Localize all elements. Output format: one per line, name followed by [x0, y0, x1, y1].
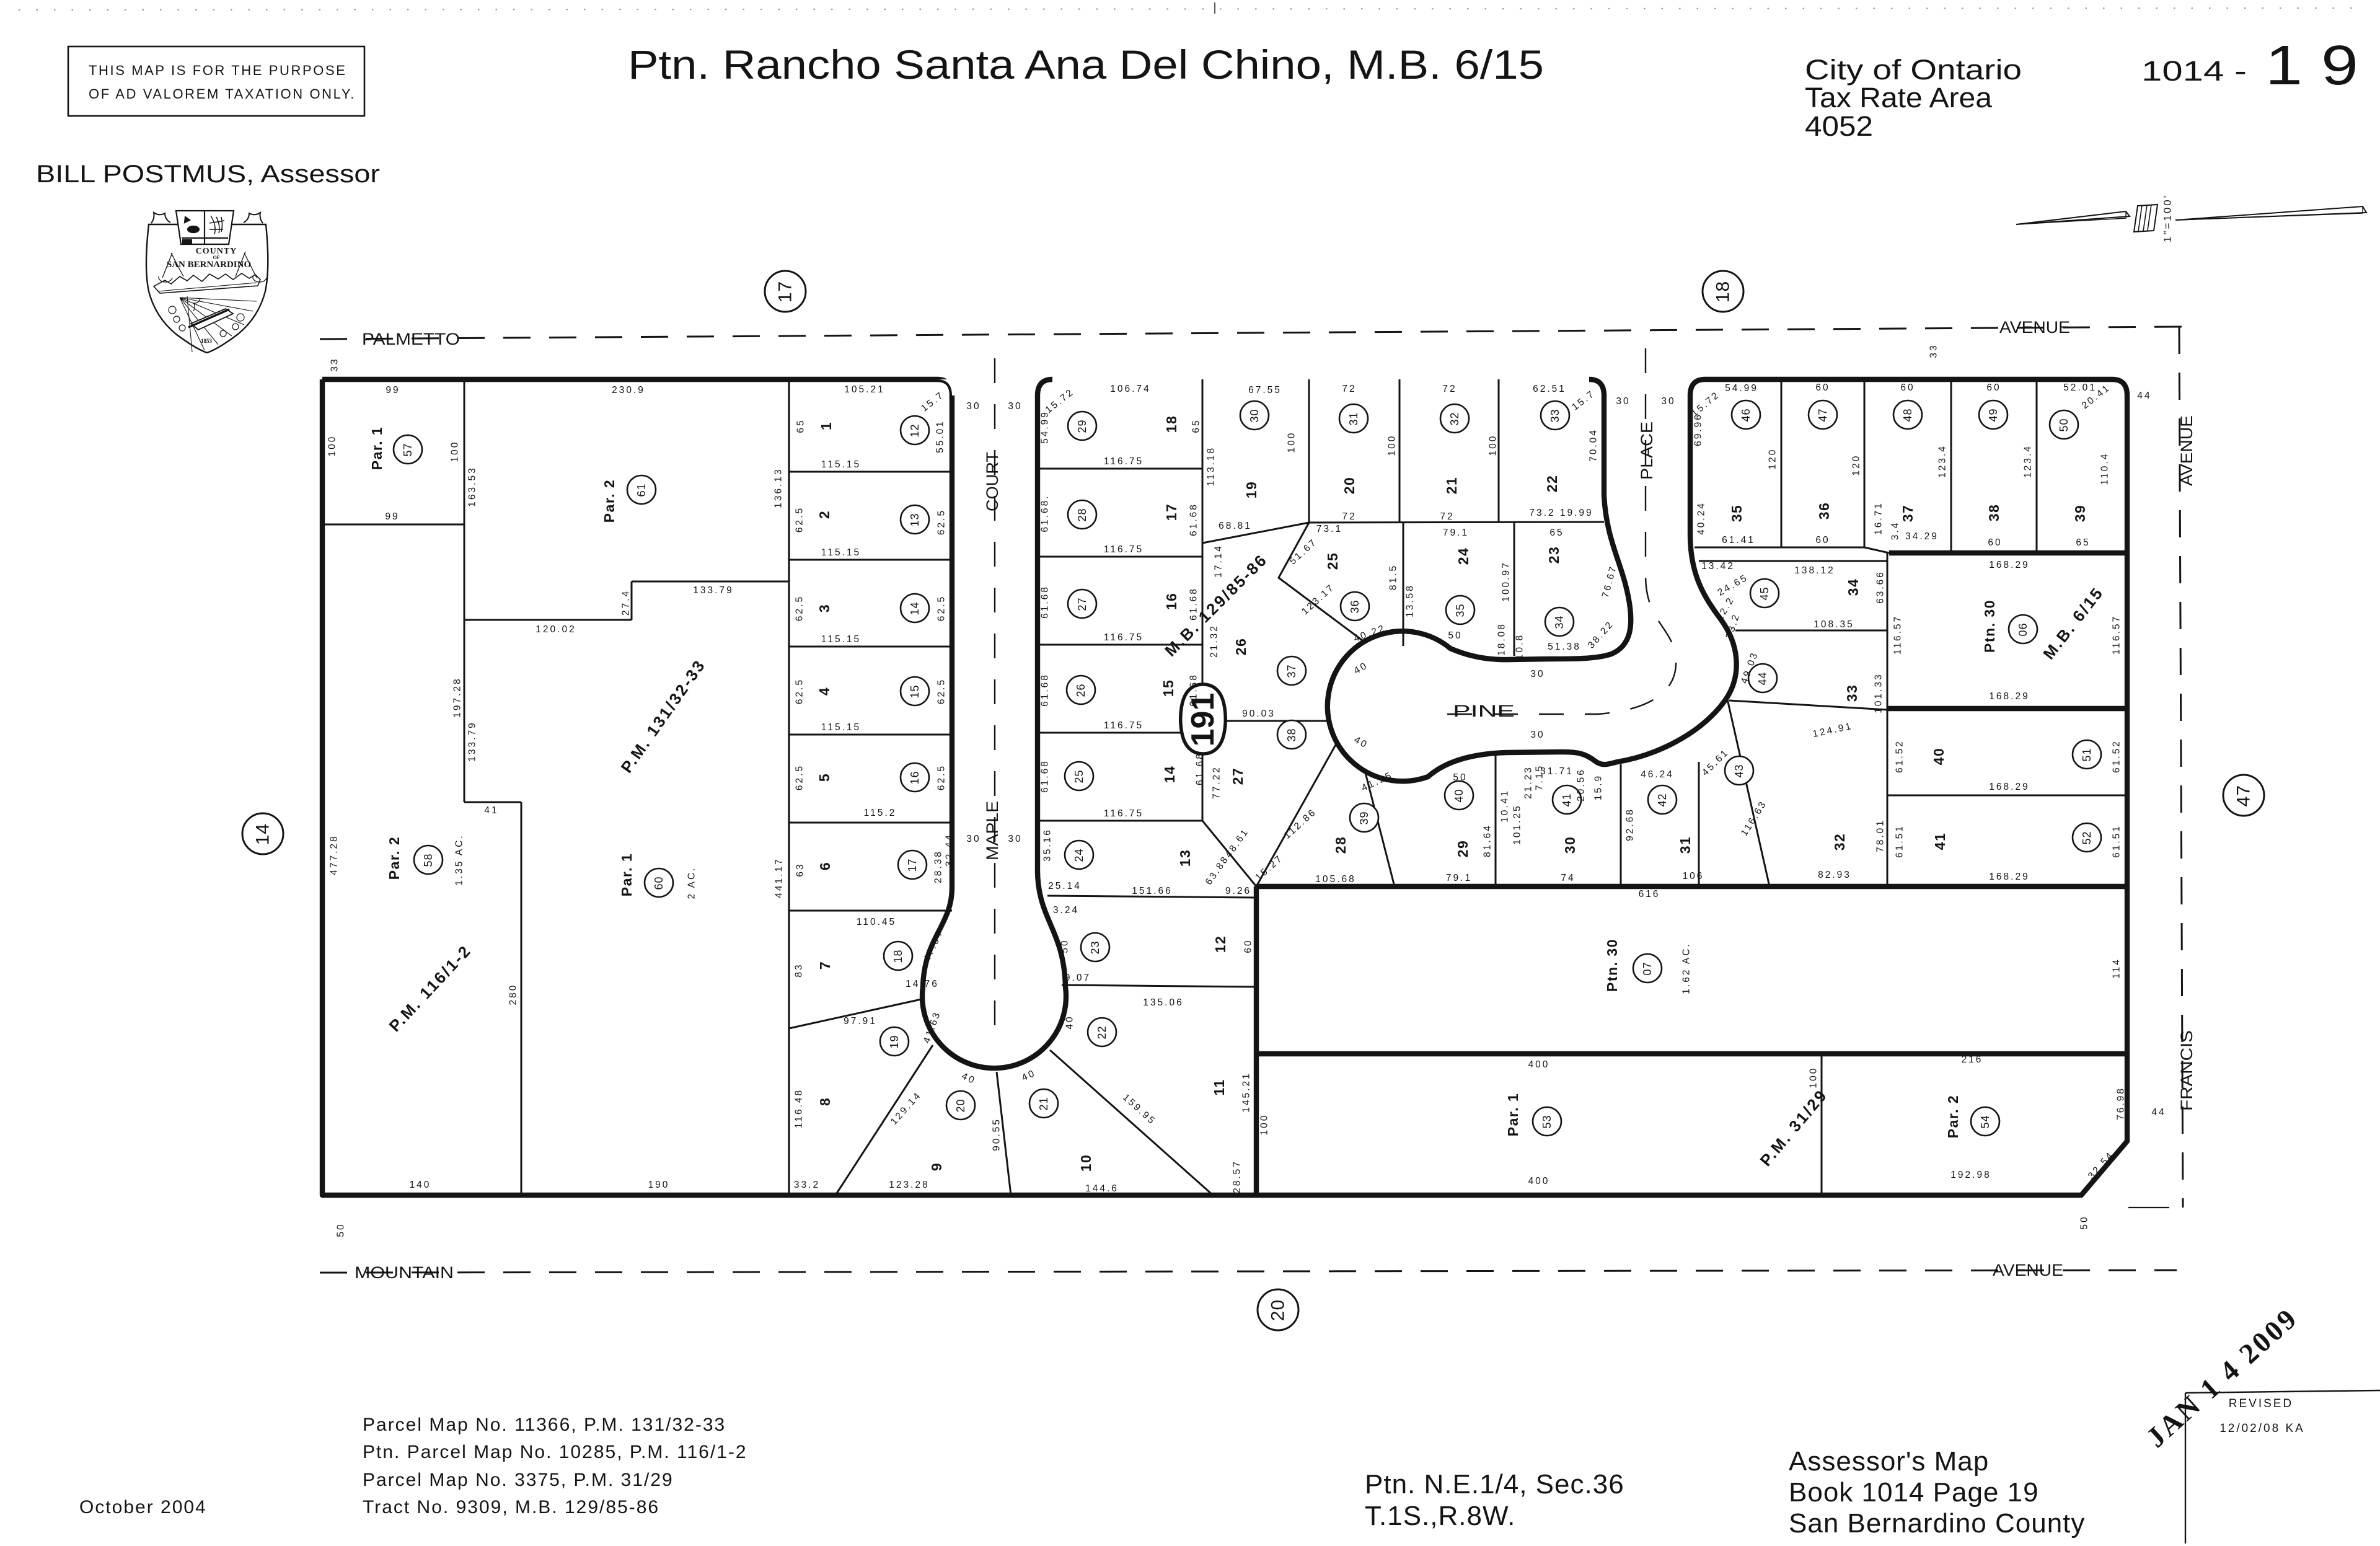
svg-text:78.01: 78.01: [1875, 819, 1886, 852]
svg-text:101.33: 101.33: [1874, 673, 1884, 713]
svg-text:60: 60: [1815, 535, 1830, 546]
svg-text:14: 14: [253, 823, 273, 845]
svg-text:23: 23: [1089, 940, 1101, 954]
svg-text:40: 40: [1453, 788, 1465, 802]
svg-text:21: 21: [1443, 477, 1460, 495]
svg-text:477.28: 477.28: [329, 834, 340, 875]
svg-text:Par. 2: Par. 2: [1945, 1095, 1961, 1138]
svg-text:22: 22: [1096, 1025, 1108, 1039]
svg-text:74: 74: [1561, 873, 1575, 883]
svg-text:City of Ontario: City of Ontario: [1805, 54, 2022, 86]
svg-text:11: 11: [1211, 1079, 1227, 1095]
svg-text:62.5: 62.5: [937, 678, 947, 704]
svg-text:61.68: 61.68: [1040, 585, 1051, 619]
svg-text:1.35 AC.: 1.35 AC.: [454, 834, 465, 885]
svg-text:32.44: 32.44: [945, 833, 955, 867]
svg-text:616: 616: [1639, 889, 1660, 899]
svg-text:12: 12: [909, 423, 921, 437]
svg-text:42: 42: [1656, 793, 1668, 806]
svg-text:3.4: 3.4: [1890, 521, 1901, 541]
svg-text:6: 6: [817, 862, 833, 870]
svg-text:116.75: 116.75: [1104, 720, 1144, 731]
svg-text:21: 21: [1038, 1097, 1050, 1110]
svg-text:THIS MAP IS FOR THE PURPOSE: THIS MAP IS FOR THE PURPOSE: [89, 63, 347, 78]
svg-text:44: 44: [1756, 671, 1769, 685]
svg-text:33: 33: [1844, 684, 1860, 702]
svg-text:72: 72: [1440, 511, 1454, 522]
svg-text:58: 58: [422, 853, 434, 867]
svg-text:54.99: 54.99: [1040, 410, 1051, 444]
svg-text:16.71: 16.71: [1874, 501, 1884, 535]
svg-text:20: 20: [1341, 477, 1357, 495]
svg-text:61.68: 61.68: [1189, 587, 1199, 621]
svg-text:57: 57: [402, 443, 414, 456]
svg-text:115.15: 115.15: [821, 634, 861, 645]
svg-text:25: 25: [1324, 552, 1341, 570]
svg-text:Assessor's Map: Assessor's Map: [1789, 1446, 1989, 1477]
svg-text:13.58: 13.58: [1405, 584, 1416, 617]
svg-text:38: 38: [1986, 504, 2002, 522]
svg-text:27: 27: [1230, 767, 1246, 785]
svg-text:10: 10: [1078, 1154, 1094, 1172]
svg-text:61.52: 61.52: [1895, 740, 1905, 773]
svg-text:Ptn. Rancho Santa Ana Del Chin: Ptn. Rancho Santa Ana Del Chino, M.B. 6/…: [628, 42, 1544, 87]
svg-text:280: 280: [508, 984, 519, 1005]
svg-text:140: 140: [410, 1180, 431, 1190]
svg-text:105.21: 105.21: [844, 384, 884, 395]
svg-text:46: 46: [1740, 408, 1752, 422]
svg-text:28.57: 28.57: [1232, 1160, 1243, 1193]
svg-text:60: 60: [1900, 382, 1915, 393]
svg-text:32: 32: [1831, 833, 1848, 851]
svg-text:AVENUE: AVENUE: [1999, 318, 2070, 337]
svg-text:116.75: 116.75: [1104, 808, 1144, 819]
svg-text:30: 30: [1008, 401, 1022, 412]
svg-text:68.81: 68.81: [1219, 521, 1252, 531]
svg-text:192.98: 192.98: [1950, 1170, 1991, 1180]
svg-text:47: 47: [1817, 408, 1829, 422]
svg-text:100: 100: [327, 435, 338, 457]
svg-text:45: 45: [1758, 586, 1771, 600]
svg-text:PALMETTO: PALMETTO: [362, 330, 460, 348]
svg-text:100: 100: [1488, 435, 1499, 456]
svg-text:441.17: 441.17: [774, 857, 785, 898]
svg-text:62.5: 62.5: [937, 764, 947, 790]
svg-text:06: 06: [2017, 622, 2029, 636]
svg-text:13: 13: [909, 513, 921, 526]
svg-text:24: 24: [1073, 848, 1085, 862]
svg-text:30: 30: [1530, 730, 1545, 740]
svg-text:15: 15: [1160, 679, 1176, 697]
svg-text:92.68: 92.68: [1625, 808, 1636, 841]
svg-text:23: 23: [1546, 546, 1562, 564]
svg-text:72: 72: [1342, 384, 1356, 394]
svg-text:1"=100': 1"=100': [2162, 194, 2174, 242]
svg-text:07: 07: [1641, 961, 1654, 975]
svg-text:106: 106: [1683, 871, 1704, 881]
svg-text:190: 190: [648, 1180, 670, 1190]
svg-text:83: 83: [794, 963, 804, 977]
svg-text:21.23: 21.23: [1523, 766, 1534, 799]
svg-text:60: 60: [1815, 382, 1830, 393]
svg-text:10.41: 10.41: [1500, 789, 1510, 823]
svg-text:1014 -: 1014 -: [2141, 55, 2247, 87]
svg-text:12/02/08 KA: 12/02/08 KA: [2219, 1422, 2305, 1435]
svg-text:36: 36: [1349, 599, 1361, 613]
svg-text:62.5: 62.5: [795, 678, 805, 704]
svg-text:18.08: 18.08: [1497, 622, 1507, 656]
svg-text:168.29: 168.29: [1989, 691, 2029, 702]
svg-text:43: 43: [1733, 764, 1745, 777]
svg-text:61.51: 61.51: [2112, 824, 2122, 858]
svg-text:116.75: 116.75: [1104, 544, 1144, 555]
svg-text:29: 29: [1455, 840, 1471, 858]
svg-text:14.76: 14.76: [906, 979, 939, 989]
svg-text:73.1: 73.1: [1316, 524, 1342, 534]
svg-text:44: 44: [2137, 391, 2151, 401]
svg-text:25: 25: [1073, 769, 1085, 783]
svg-text:65: 65: [1549, 528, 1564, 538]
svg-text:52: 52: [2081, 831, 2093, 844]
svg-text:163.53: 163.53: [467, 466, 478, 506]
svg-text:79.1: 79.1: [1443, 528, 1469, 538]
svg-text:Parcel Map No. 11366, P.M. 131: Parcel Map No. 11366, P.M. 131/32-33: [363, 1415, 726, 1435]
svg-text:17: 17: [775, 281, 796, 303]
svg-text:99: 99: [386, 385, 400, 395]
svg-text:38: 38: [1285, 728, 1298, 741]
svg-text:30: 30: [1008, 834, 1022, 844]
svg-text:Par. 1: Par. 1: [1505, 1093, 1521, 1136]
svg-text:7: 7: [817, 961, 833, 970]
svg-text:100: 100: [1387, 435, 1398, 456]
svg-text:5: 5: [816, 773, 832, 782]
svg-text:113.18: 113.18: [1206, 446, 1217, 486]
svg-text:81.64: 81.64: [1483, 824, 1493, 857]
svg-text:70.04: 70.04: [1589, 428, 1599, 462]
svg-text:100.97: 100.97: [1501, 561, 1512, 601]
svg-text:50: 50: [1453, 772, 1467, 783]
svg-text:Par. 1: Par. 1: [369, 426, 385, 470]
svg-text:54: 54: [1979, 1115, 1991, 1128]
svg-text:4: 4: [816, 687, 832, 696]
svg-text:20: 20: [1268, 1299, 1289, 1321]
svg-text:39: 39: [1358, 811, 1370, 824]
svg-text:46.24: 46.24: [1641, 769, 1674, 780]
svg-text:1853: 1853: [201, 338, 213, 344]
svg-text:63.66: 63.66: [1875, 570, 1886, 604]
svg-text:115.15: 115.15: [821, 722, 861, 733]
svg-text:123.4: 123.4: [1937, 444, 1948, 478]
svg-text:50: 50: [2079, 1215, 2090, 1229]
svg-text:116.57: 116.57: [2112, 615, 2122, 655]
svg-text:62.5: 62.5: [795, 764, 805, 790]
svg-text:19: 19: [888, 1035, 901, 1048]
svg-text:144.6: 144.6: [1085, 1183, 1119, 1194]
svg-text:27: 27: [1076, 597, 1088, 611]
svg-text:53: 53: [1541, 1115, 1553, 1128]
svg-text:79.1: 79.1: [1446, 873, 1472, 883]
svg-text:Ptn. 30: Ptn. 30: [1604, 939, 1620, 992]
svg-text:99: 99: [385, 511, 399, 522]
svg-text:32: 32: [1448, 412, 1461, 425]
svg-text:133.79: 133.79: [693, 585, 733, 596]
svg-text:33: 33: [1929, 343, 1939, 358]
svg-text:SAN BERNARDINO: SAN BERNARDINO: [167, 260, 251, 270]
svg-text:40: 40: [1931, 748, 1947, 766]
svg-text:62.5: 62.5: [795, 506, 805, 532]
svg-text:61.68: 61.68: [1040, 673, 1051, 707]
svg-text:138.12: 138.12: [1794, 565, 1835, 576]
svg-text:28: 28: [1333, 836, 1349, 854]
svg-text:30: 30: [1562, 836, 1578, 854]
svg-text:81.5: 81.5: [1388, 564, 1399, 590]
svg-text:28.38: 28.38: [933, 850, 944, 883]
svg-text:51: 51: [2081, 748, 2093, 761]
svg-text:27.4: 27.4: [621, 590, 632, 616]
svg-text:29: 29: [1076, 419, 1088, 433]
svg-text:Par. 2: Par. 2: [386, 836, 402, 880]
svg-text:30: 30: [1661, 396, 1675, 407]
svg-text:67.55: 67.55: [1248, 385, 1282, 395]
svg-text:230.9: 230.9: [612, 385, 645, 395]
svg-text:50: 50: [1060, 939, 1070, 953]
svg-text:Ptn. 30: Ptn. 30: [1981, 599, 1998, 653]
svg-text:2: 2: [816, 510, 832, 519]
svg-text:20: 20: [954, 1098, 967, 1112]
svg-text:AVENUE: AVENUE: [2177, 415, 2196, 486]
svg-text:133.79: 133.79: [467, 721, 478, 761]
svg-text:30: 30: [966, 834, 981, 844]
svg-text:90.55: 90.55: [992, 1118, 1002, 1151]
svg-text:60: 60: [653, 876, 665, 890]
svg-text:116.57: 116.57: [1893, 615, 1903, 655]
svg-text:115.15: 115.15: [821, 547, 861, 558]
svg-text:30: 30: [1530, 669, 1545, 679]
svg-text:9.26: 9.26: [1225, 886, 1251, 896]
svg-text:28: 28: [1076, 508, 1088, 521]
svg-text:115.2: 115.2: [864, 808, 897, 818]
svg-text:16: 16: [909, 771, 921, 784]
svg-text:61.68: 61.68: [1040, 759, 1051, 793]
svg-text:COURT: COURT: [983, 452, 1002, 511]
svg-text:22: 22: [1544, 475, 1560, 493]
svg-text:72: 72: [1442, 384, 1457, 394]
svg-text:7.15: 7.15: [1535, 764, 1545, 790]
svg-text:116.75: 116.75: [1104, 632, 1144, 643]
svg-text:REVISED: REVISED: [2229, 1397, 2293, 1410]
svg-text:63: 63: [795, 862, 806, 877]
svg-text:61: 61: [635, 483, 648, 497]
svg-text:21.32: 21.32: [1209, 624, 1220, 658]
svg-text:MOUNTAIN: MOUNTAIN: [355, 1263, 454, 1282]
svg-text:34: 34: [1553, 615, 1566, 629]
svg-text:61.68: 61.68: [1189, 503, 1199, 536]
svg-text:1: 1: [818, 422, 834, 430]
svg-text:41: 41: [1932, 833, 1948, 850]
svg-text:61.68: 61.68: [1189, 673, 1199, 707]
svg-text:61.51: 61.51: [1895, 824, 1905, 858]
svg-text:Parcel Map No. 3375, P.M. 31/2: Parcel Map No. 3375, P.M. 31/29: [363, 1470, 674, 1490]
svg-text:4052: 4052: [1805, 110, 1873, 142]
svg-text:18: 18: [1163, 415, 1179, 433]
svg-text:61.41: 61.41: [1722, 535, 1755, 546]
svg-text:120.02: 120.02: [535, 624, 576, 635]
svg-text:65: 65: [2076, 537, 2090, 548]
svg-text:31: 31: [1677, 836, 1693, 854]
svg-text:3: 3: [816, 604, 832, 612]
svg-text:1.62 AC.: 1.62 AC.: [1681, 942, 1692, 994]
svg-text:FRANCIS: FRANCIS: [2177, 1030, 2196, 1111]
svg-text:145.21: 145.21: [1241, 1072, 1252, 1112]
svg-text:65: 65: [796, 418, 806, 433]
svg-text:100: 100: [1809, 1067, 1819, 1089]
svg-text:15: 15: [909, 684, 921, 698]
svg-text:60: 60: [1988, 537, 2002, 548]
svg-text:19: 19: [1243, 481, 1259, 499]
svg-text:60: 60: [1986, 382, 2001, 393]
svg-text:54.99: 54.99: [1725, 383, 1758, 394]
svg-text:AVENUE: AVENUE: [1993, 1261, 2063, 1279]
svg-text:55.01: 55.01: [935, 420, 946, 453]
svg-text:62.5: 62.5: [795, 595, 805, 621]
svg-text:61.52: 61.52: [2112, 740, 2122, 773]
svg-text:116.75: 116.75: [1104, 456, 1144, 467]
svg-text:72: 72: [1342, 511, 1356, 522]
svg-text:1 9: 1 9: [2265, 35, 2358, 97]
svg-text:33: 33: [1549, 409, 1561, 422]
svg-text:14: 14: [909, 601, 921, 615]
svg-text:30: 30: [1248, 409, 1261, 422]
svg-text:18: 18: [1713, 281, 1734, 303]
svg-text:101.25: 101.25: [1512, 804, 1523, 844]
svg-text:MAPLE: MAPLE: [983, 801, 1002, 860]
svg-text:39: 39: [2072, 505, 2088, 523]
svg-text:16: 16: [1163, 593, 1179, 611]
svg-text:OF AD VALOREM TAXATION ONLY.: OF AD VALOREM TAXATION ONLY.: [89, 86, 356, 102]
svg-text:30: 30: [966, 401, 981, 412]
svg-text:100: 100: [450, 441, 461, 462]
svg-text:50: 50: [1448, 630, 1462, 641]
svg-text:13: 13: [1177, 849, 1193, 867]
svg-text:Ptn. Parcel Map No. 10285, P.M: Ptn. Parcel Map No. 10285, P.M. 116/1-2: [363, 1442, 747, 1462]
svg-text:44: 44: [2151, 1107, 2166, 1118]
svg-text:62.51: 62.51: [1533, 384, 1566, 394]
svg-text:40.24: 40.24: [1696, 501, 1707, 535]
svg-text:25.14: 25.14: [1048, 881, 1082, 891]
svg-text:97.91: 97.91: [844, 1016, 877, 1027]
svg-text:100: 100: [1259, 1114, 1270, 1136]
svg-text:17.14: 17.14: [1214, 544, 1224, 578]
svg-text:123.28: 123.28: [889, 1180, 929, 1190]
svg-text:41: 41: [1561, 793, 1573, 806]
svg-text:33.2: 33.2: [794, 1180, 820, 1190]
svg-text:Par. 2: Par. 2: [601, 479, 617, 523]
svg-text:17: 17: [906, 858, 919, 872]
svg-text:San Bernardino County: San Bernardino County: [1789, 1508, 2085, 1539]
svg-text:12: 12: [1212, 935, 1228, 953]
svg-text:168.29: 168.29: [1989, 872, 2029, 882]
svg-text:26: 26: [1233, 638, 1249, 656]
svg-text:13.42: 13.42: [1701, 561, 1735, 572]
svg-text:48: 48: [1902, 408, 1914, 422]
svg-text:114: 114: [2112, 958, 2122, 979]
svg-text:41: 41: [484, 805, 498, 816]
svg-text:400: 400: [1528, 1176, 1550, 1186]
svg-text:61.68: 61.68: [1195, 752, 1205, 785]
svg-text:49: 49: [1987, 408, 1999, 422]
svg-text:115.15: 115.15: [821, 459, 861, 470]
svg-text:400: 400: [1528, 1059, 1550, 1070]
svg-text:PINE: PINE: [1453, 702, 1515, 720]
svg-text:15.9: 15.9: [1593, 774, 1604, 800]
svg-text:82.93: 82.93: [1818, 870, 1851, 880]
svg-text:168.29: 168.29: [1989, 560, 2029, 570]
svg-text:9: 9: [928, 1162, 945, 1171]
svg-text:Tax Rate Area: Tax Rate Area: [1805, 82, 1993, 113]
svg-text:123.4: 123.4: [2023, 444, 2034, 478]
svg-text:36: 36: [1816, 502, 1832, 520]
svg-text:9.07: 9.07: [1065, 973, 1091, 983]
svg-text:Tract No. 9309, M.B. 129/85-86: Tract No. 9309, M.B. 129/85-86: [363, 1497, 659, 1517]
svg-text:10.8: 10.8: [1515, 634, 1525, 660]
svg-text:60: 60: [1243, 939, 1254, 953]
svg-text:116.48: 116.48: [794, 1089, 804, 1128]
svg-text:3.24: 3.24: [1053, 905, 1079, 916]
svg-text:105.68: 105.68: [1315, 874, 1355, 885]
svg-text:PLACE: PLACE: [1637, 422, 1656, 480]
svg-text:110.4: 110.4: [2100, 453, 2110, 485]
svg-text:100: 100: [1287, 431, 1297, 453]
svg-text:26: 26: [1075, 683, 1087, 697]
svg-text:197.28: 197.28: [452, 677, 463, 717]
svg-text:135.06: 135.06: [1143, 997, 1183, 1008]
svg-text:168.29: 168.29: [1989, 782, 2029, 792]
svg-text:61.68.: 61.68.: [1040, 494, 1051, 532]
svg-text:37: 37: [1285, 664, 1298, 678]
svg-text:65: 65: [1191, 418, 1202, 433]
svg-text:Book 1014 Page 19: Book 1014 Page 19: [1789, 1477, 2039, 1508]
svg-text:40: 40: [1065, 1015, 1075, 1029]
svg-text:BILL POSTMUS, Assessor: BILL POSTMUS, Assessor: [36, 161, 380, 188]
svg-text:2 AC.: 2 AC.: [687, 867, 697, 899]
svg-text:17: 17: [1163, 503, 1179, 521]
svg-text:62.5: 62.5: [937, 509, 947, 535]
svg-text:62.5: 62.5: [937, 595, 947, 621]
svg-text:Par. 1: Par. 1: [619, 853, 635, 896]
svg-text:8: 8: [817, 1097, 833, 1106]
svg-text:151.66: 151.66: [1132, 886, 1172, 896]
svg-text:24: 24: [1455, 547, 1471, 565]
svg-text:35: 35: [1454, 603, 1466, 617]
svg-text:Ptn. N.E.1/4, Sec.36: Ptn. N.E.1/4, Sec.36: [1365, 1469, 1624, 1500]
svg-text:31: 31: [1347, 412, 1360, 425]
svg-text:47: 47: [2234, 785, 2254, 806]
svg-text:October 2004: October 2004: [79, 1497, 207, 1517]
svg-text:35.16: 35.16: [1042, 828, 1053, 862]
svg-text:108.35: 108.35: [1814, 619, 1854, 630]
svg-text:216: 216: [1962, 1054, 1983, 1065]
svg-text:34: 34: [1845, 578, 1861, 596]
svg-text:34.29: 34.29: [1905, 531, 1939, 542]
svg-text:110.45: 110.45: [857, 917, 896, 927]
svg-text:120: 120: [1851, 454, 1862, 476]
svg-text:106.74: 106.74: [1110, 384, 1150, 394]
svg-text:73.2 19.99: 73.2 19.99: [1529, 508, 1593, 518]
svg-text:37: 37: [1900, 505, 1916, 523]
svg-text:69.96: 69.96: [1693, 413, 1704, 446]
svg-text:50: 50: [336, 1222, 346, 1237]
svg-text:77.22: 77.22: [1212, 766, 1222, 799]
